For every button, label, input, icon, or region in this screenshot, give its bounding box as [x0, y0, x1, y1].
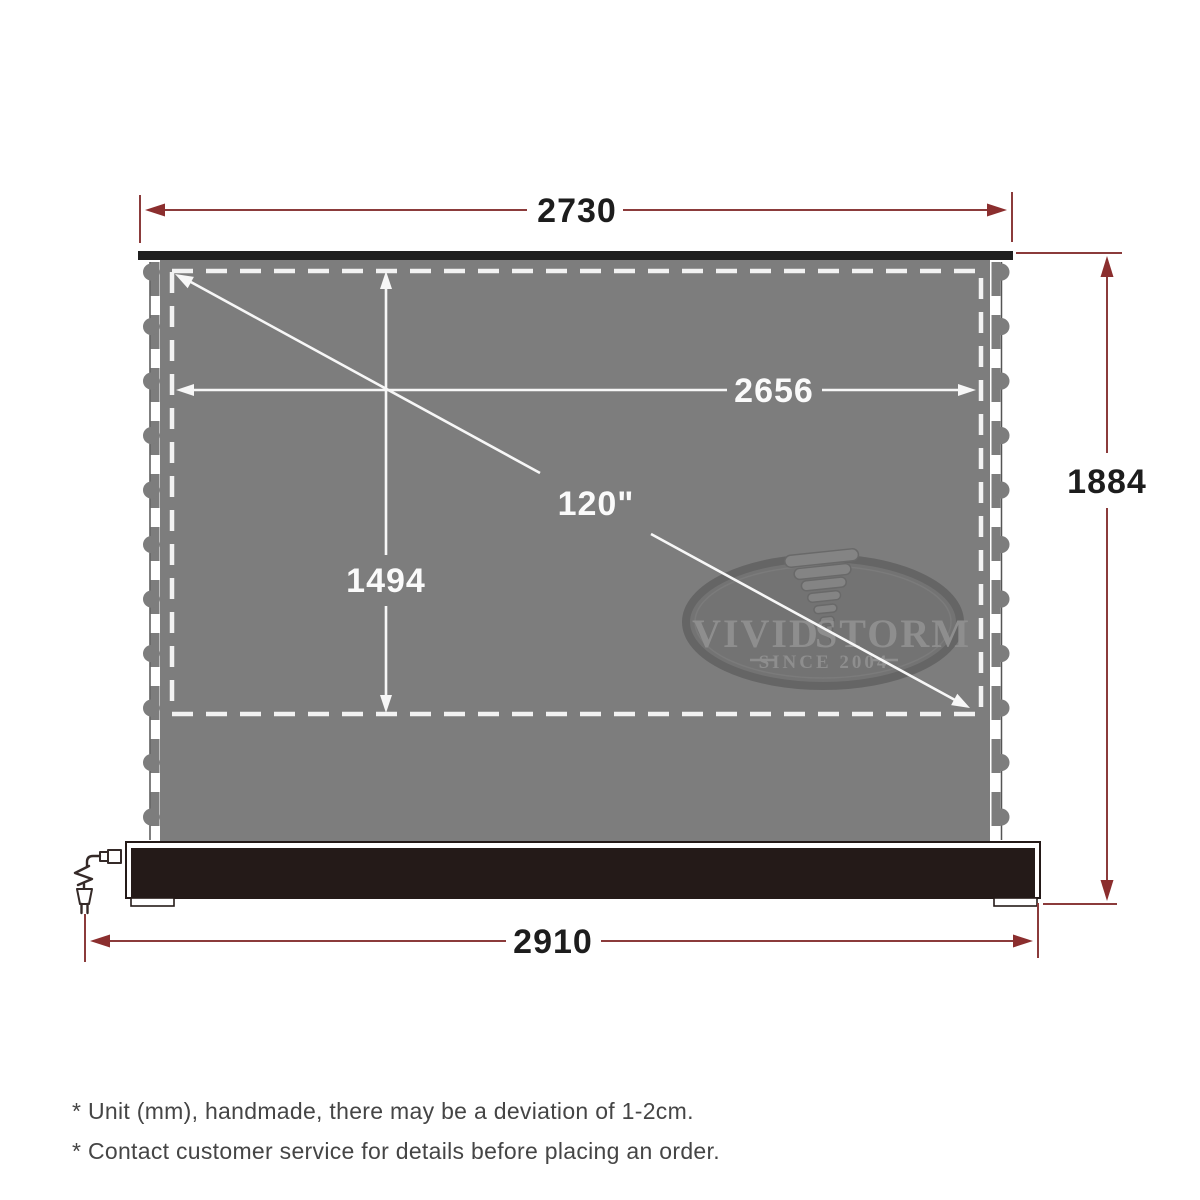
dim-top-width: 2730 [140, 192, 1012, 243]
logo-tagline: SINCE 2004 [759, 652, 890, 673]
arrow-left-icon [90, 935, 110, 948]
arrow-up-icon [1101, 256, 1114, 277]
screen-right-edge [990, 260, 1004, 842]
base-foot-right [994, 898, 1037, 906]
top-width-value: 2730 [537, 192, 617, 230]
arrow-left-icon [145, 204, 165, 217]
arrow-right-icon [987, 204, 1007, 217]
power-plug-icon [75, 850, 121, 913]
footnotes: * Unit (mm), handmade, there may be a de… [72, 1098, 720, 1164]
inner-height-value: 1494 [346, 562, 426, 600]
footnote-contact: * Contact customer service for details b… [72, 1138, 720, 1164]
top-slat [138, 251, 1013, 260]
arrow-right-icon [1013, 935, 1033, 948]
screen-left-edge [146, 260, 160, 842]
logo-word-storm: STORM [815, 611, 971, 656]
base-width-value: 2910 [513, 923, 593, 961]
screen-surface [149, 260, 1004, 842]
dim-base-width: 2910 [85, 903, 1038, 962]
inner-width-value: 2656 [734, 372, 814, 410]
base-housing [126, 842, 1040, 906]
total-height-value: 1884 [1067, 463, 1147, 501]
dim-total-height: 1884 [1016, 253, 1147, 904]
footnote-unit: * Unit (mm), handmade, there may be a de… [72, 1098, 694, 1124]
diagonal-value: 120" [558, 485, 635, 523]
arrow-down-icon [1101, 880, 1114, 901]
screen-panel [149, 260, 1004, 842]
base-body [131, 848, 1035, 898]
screen-dimension-diagram: VIVID STORM SINCE 2004 2656 1494 120" [0, 0, 1200, 1200]
base-foot-left [131, 898, 174, 906]
logo-word-vivid: VIVID [692, 611, 820, 656]
